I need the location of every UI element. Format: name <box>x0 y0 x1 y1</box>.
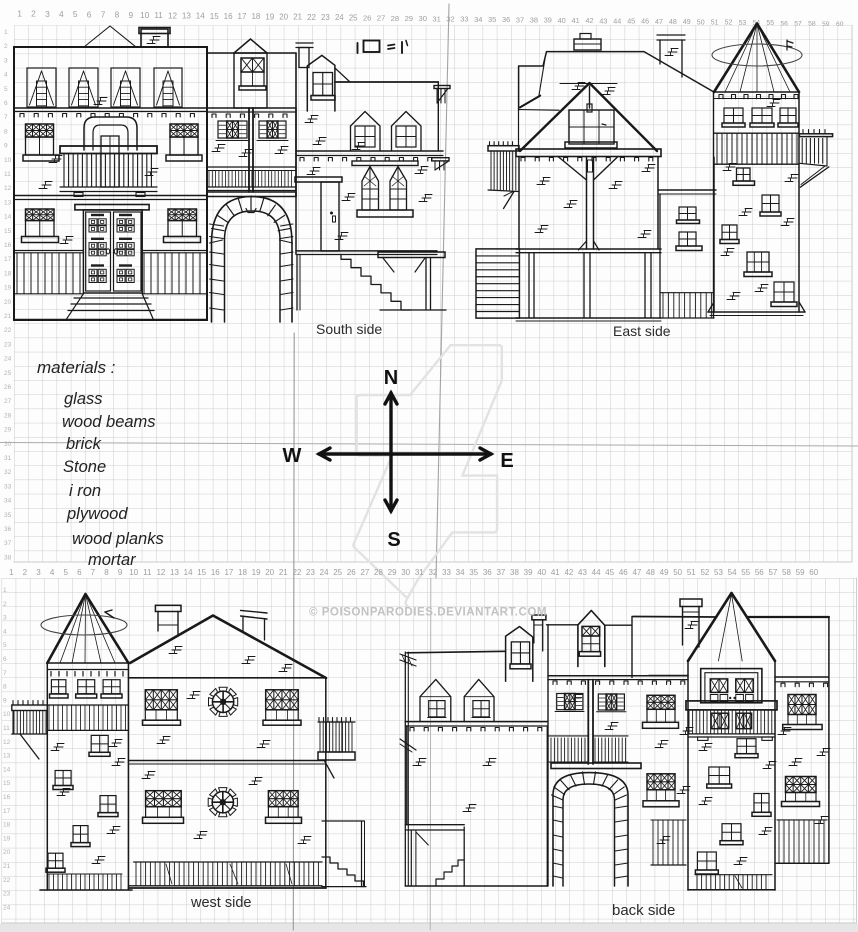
svg-text:19: 19 <box>3 835 11 842</box>
svg-text:47: 47 <box>655 18 663 26</box>
svg-text:36: 36 <box>483 568 492 577</box>
svg-text:41: 41 <box>572 16 580 25</box>
svg-text:42: 42 <box>586 16 594 25</box>
svg-text:48: 48 <box>646 568 655 577</box>
svg-text:30: 30 <box>401 568 410 577</box>
svg-text:41: 41 <box>551 568 560 577</box>
svg-text:36: 36 <box>4 526 12 533</box>
svg-text:mortar: mortar <box>88 551 137 569</box>
svg-text:16: 16 <box>3 794 11 801</box>
svg-text:3: 3 <box>3 615 7 622</box>
svg-text:39: 39 <box>544 16 552 25</box>
svg-text:28: 28 <box>374 568 383 577</box>
svg-text:21: 21 <box>293 13 302 22</box>
svg-text:59: 59 <box>822 21 830 28</box>
svg-text:Stone: Stone <box>63 458 106 476</box>
svg-text:20: 20 <box>4 299 12 306</box>
svg-text:31: 31 <box>415 568 424 577</box>
svg-text:51: 51 <box>711 20 719 27</box>
svg-text:wood beams: wood beams <box>62 413 156 431</box>
svg-text:32: 32 <box>446 15 454 24</box>
svg-text:6: 6 <box>3 656 7 663</box>
svg-text:30: 30 <box>418 14 426 23</box>
svg-text:13: 13 <box>170 568 179 577</box>
svg-text:31: 31 <box>432 14 440 23</box>
svg-text:12: 12 <box>156 568 165 577</box>
svg-text:29: 29 <box>388 568 397 577</box>
svg-text:15: 15 <box>4 228 12 235</box>
svg-text:25: 25 <box>333 568 342 577</box>
svg-text:23: 23 <box>4 341 12 348</box>
svg-text:10: 10 <box>4 157 12 164</box>
svg-text:19: 19 <box>252 568 261 577</box>
svg-text:35: 35 <box>469 568 478 577</box>
svg-text:6: 6 <box>87 9 92 19</box>
svg-text:4: 4 <box>50 568 55 577</box>
svg-text:11: 11 <box>4 171 11 178</box>
svg-text:15: 15 <box>3 780 11 787</box>
svg-text:2: 2 <box>23 568 28 577</box>
svg-text:7: 7 <box>91 568 96 577</box>
svg-text:19: 19 <box>265 12 274 21</box>
svg-text:23: 23 <box>306 568 315 577</box>
svg-text:3: 3 <box>45 9 50 19</box>
svg-text:3: 3 <box>4 57 8 64</box>
svg-text:9: 9 <box>128 10 133 20</box>
svg-text:i ron: i ron <box>69 482 101 500</box>
svg-text:16: 16 <box>4 242 12 249</box>
svg-text:14: 14 <box>196 12 206 21</box>
svg-text:38: 38 <box>510 568 519 577</box>
svg-text:37: 37 <box>4 540 12 547</box>
svg-text:2: 2 <box>31 9 36 19</box>
svg-text:13: 13 <box>4 199 12 206</box>
svg-text:55: 55 <box>741 568 750 577</box>
svg-text:34: 34 <box>456 568 465 577</box>
svg-text:20: 20 <box>279 13 288 22</box>
svg-text:brick: brick <box>66 435 102 453</box>
svg-text:1: 1 <box>17 9 22 19</box>
svg-text:26: 26 <box>363 14 372 23</box>
svg-text:37: 37 <box>516 15 524 24</box>
svg-text:7: 7 <box>4 114 8 121</box>
svg-text:12: 12 <box>3 739 11 746</box>
svg-text:9: 9 <box>3 697 7 704</box>
svg-text:28: 28 <box>391 14 400 23</box>
svg-text:24: 24 <box>335 13 344 22</box>
svg-text:N: N <box>384 367 398 389</box>
svg-text:3: 3 <box>36 568 41 577</box>
svg-text:39: 39 <box>524 568 533 577</box>
svg-text:27: 27 <box>377 14 386 23</box>
svg-text:57: 57 <box>768 568 777 577</box>
svg-text:33: 33 <box>460 15 468 24</box>
svg-text:55: 55 <box>766 20 774 27</box>
svg-text:1: 1 <box>9 568 14 577</box>
svg-text:20: 20 <box>3 849 11 856</box>
svg-text:38: 38 <box>530 16 538 25</box>
svg-text:29: 29 <box>405 14 413 23</box>
svg-text:4: 4 <box>3 628 7 635</box>
svg-text:23: 23 <box>3 891 11 898</box>
svg-text:29: 29 <box>4 427 12 434</box>
svg-text:5: 5 <box>3 642 7 649</box>
svg-text:25: 25 <box>4 370 12 377</box>
svg-text:18: 18 <box>4 270 12 277</box>
svg-text:50: 50 <box>673 568 682 577</box>
svg-text:23: 23 <box>321 13 330 22</box>
svg-text:19: 19 <box>4 285 12 292</box>
svg-text:21: 21 <box>279 568 288 577</box>
svg-text:17: 17 <box>238 12 247 21</box>
svg-text:west side: west side <box>190 895 251 911</box>
svg-text:24: 24 <box>320 568 329 577</box>
svg-text:57: 57 <box>794 21 802 28</box>
svg-text:2: 2 <box>3 601 7 608</box>
svg-text:South side: South side <box>316 321 382 337</box>
svg-text:15: 15 <box>197 568 206 577</box>
svg-text:54: 54 <box>728 568 737 577</box>
svg-text:8: 8 <box>104 568 109 577</box>
svg-text:35: 35 <box>4 512 12 519</box>
svg-text:44: 44 <box>592 568 601 577</box>
svg-text:21: 21 <box>4 313 12 320</box>
svg-text:14: 14 <box>184 568 193 577</box>
svg-text:7: 7 <box>101 10 106 20</box>
svg-text:43: 43 <box>599 16 607 25</box>
svg-text:60: 60 <box>809 568 818 577</box>
svg-text:materials :: materials : <box>37 358 116 377</box>
svg-text:49: 49 <box>660 568 669 577</box>
svg-text:16: 16 <box>224 12 233 21</box>
svg-text:59: 59 <box>796 568 805 577</box>
svg-text:glass: glass <box>64 390 103 408</box>
svg-text:22: 22 <box>307 13 316 22</box>
svg-text:60: 60 <box>836 21 844 28</box>
svg-text:8: 8 <box>4 128 8 135</box>
svg-text:42: 42 <box>564 568 573 577</box>
svg-text:W: W <box>283 445 302 467</box>
svg-text:9: 9 <box>118 568 123 577</box>
svg-text:1: 1 <box>3 587 7 594</box>
svg-text:17: 17 <box>4 256 12 263</box>
svg-text:back side: back side <box>612 902 675 919</box>
svg-text:50: 50 <box>697 19 705 26</box>
svg-text:52: 52 <box>725 20 733 27</box>
svg-text:43: 43 <box>578 568 587 577</box>
svg-text:40: 40 <box>558 16 566 25</box>
svg-text:5: 5 <box>73 9 78 19</box>
svg-text:46: 46 <box>619 568 628 577</box>
svg-text:27: 27 <box>360 568 369 577</box>
svg-text:10: 10 <box>3 711 11 718</box>
svg-text:13: 13 <box>182 11 192 20</box>
svg-text:10: 10 <box>140 11 150 20</box>
svg-text:13: 13 <box>3 753 11 760</box>
svg-text:1: 1 <box>4 29 8 36</box>
svg-text:20: 20 <box>265 568 274 577</box>
svg-text:56: 56 <box>755 568 764 577</box>
svg-text:31: 31 <box>4 455 12 462</box>
svg-text:22: 22 <box>292 568 301 577</box>
svg-text:8: 8 <box>115 10 120 20</box>
svg-text:36: 36 <box>502 15 510 24</box>
svg-text:56: 56 <box>780 20 788 27</box>
svg-text:17: 17 <box>224 568 233 577</box>
svg-text:52: 52 <box>700 568 709 577</box>
svg-text:7: 7 <box>3 670 7 677</box>
svg-text:10: 10 <box>129 568 138 577</box>
svg-text:34: 34 <box>474 15 482 24</box>
svg-text:S: S <box>387 529 400 551</box>
svg-text:45: 45 <box>605 568 614 577</box>
svg-text:6: 6 <box>77 568 82 577</box>
svg-text:9: 9 <box>4 143 8 150</box>
svg-text:22: 22 <box>3 877 11 884</box>
svg-text:14: 14 <box>3 766 11 773</box>
svg-text:46: 46 <box>641 18 649 26</box>
svg-text:18: 18 <box>3 822 11 829</box>
svg-text:15: 15 <box>210 12 220 21</box>
svg-text:© POISONPARODIES.DEVIANTART.CO: © POISONPARODIES.DEVIANTART.COM <box>309 606 547 619</box>
svg-text:44: 44 <box>613 16 621 25</box>
svg-text:30: 30 <box>4 441 12 448</box>
svg-text:58: 58 <box>808 21 816 28</box>
svg-text:16: 16 <box>211 568 220 577</box>
svg-text:18: 18 <box>238 568 247 577</box>
svg-text:24: 24 <box>4 356 12 363</box>
svg-text:35: 35 <box>488 15 496 24</box>
svg-text:4: 4 <box>4 72 8 79</box>
svg-text:East side: East side <box>613 323 671 339</box>
svg-text:32: 32 <box>428 568 437 577</box>
svg-text:11: 11 <box>154 11 163 20</box>
svg-text:37: 37 <box>496 568 505 577</box>
svg-text:26: 26 <box>4 384 12 391</box>
svg-text:24: 24 <box>3 904 11 911</box>
svg-text:22: 22 <box>4 327 12 334</box>
svg-text:33: 33 <box>4 483 12 490</box>
svg-text:32: 32 <box>4 469 12 476</box>
svg-text:18: 18 <box>251 12 260 21</box>
svg-text:34: 34 <box>4 498 12 505</box>
svg-text:12: 12 <box>168 11 178 20</box>
svg-text:45: 45 <box>627 17 635 26</box>
svg-text:E: E <box>500 450 513 472</box>
svg-text:47: 47 <box>632 568 641 577</box>
svg-text:5: 5 <box>4 86 8 93</box>
svg-text:51: 51 <box>687 568 696 577</box>
svg-text:26: 26 <box>347 568 356 577</box>
svg-text:4: 4 <box>59 9 64 19</box>
svg-text:40: 40 <box>537 568 546 577</box>
svg-text:33: 33 <box>442 568 451 577</box>
svg-text:17: 17 <box>3 808 11 815</box>
svg-text:2: 2 <box>4 43 8 50</box>
svg-text:53: 53 <box>739 20 747 27</box>
svg-text:27: 27 <box>4 398 12 405</box>
svg-text:8: 8 <box>3 684 7 691</box>
svg-text:plywood: plywood <box>66 505 128 523</box>
svg-text:21: 21 <box>3 863 11 870</box>
svg-text:38: 38 <box>4 554 12 561</box>
svg-text:53: 53 <box>714 568 723 577</box>
svg-text:6: 6 <box>4 100 8 107</box>
svg-text:12: 12 <box>4 185 12 192</box>
svg-text:28: 28 <box>4 412 12 419</box>
svg-text:11: 11 <box>143 568 152 577</box>
svg-text:49: 49 <box>683 19 691 26</box>
svg-text:14: 14 <box>4 214 12 221</box>
svg-text:25: 25 <box>349 13 358 22</box>
svg-text:48: 48 <box>669 18 677 26</box>
svg-text:11: 11 <box>3 725 10 732</box>
svg-text:wood planks: wood planks <box>72 530 164 548</box>
svg-text:5: 5 <box>63 568 68 577</box>
svg-text:58: 58 <box>782 568 791 577</box>
